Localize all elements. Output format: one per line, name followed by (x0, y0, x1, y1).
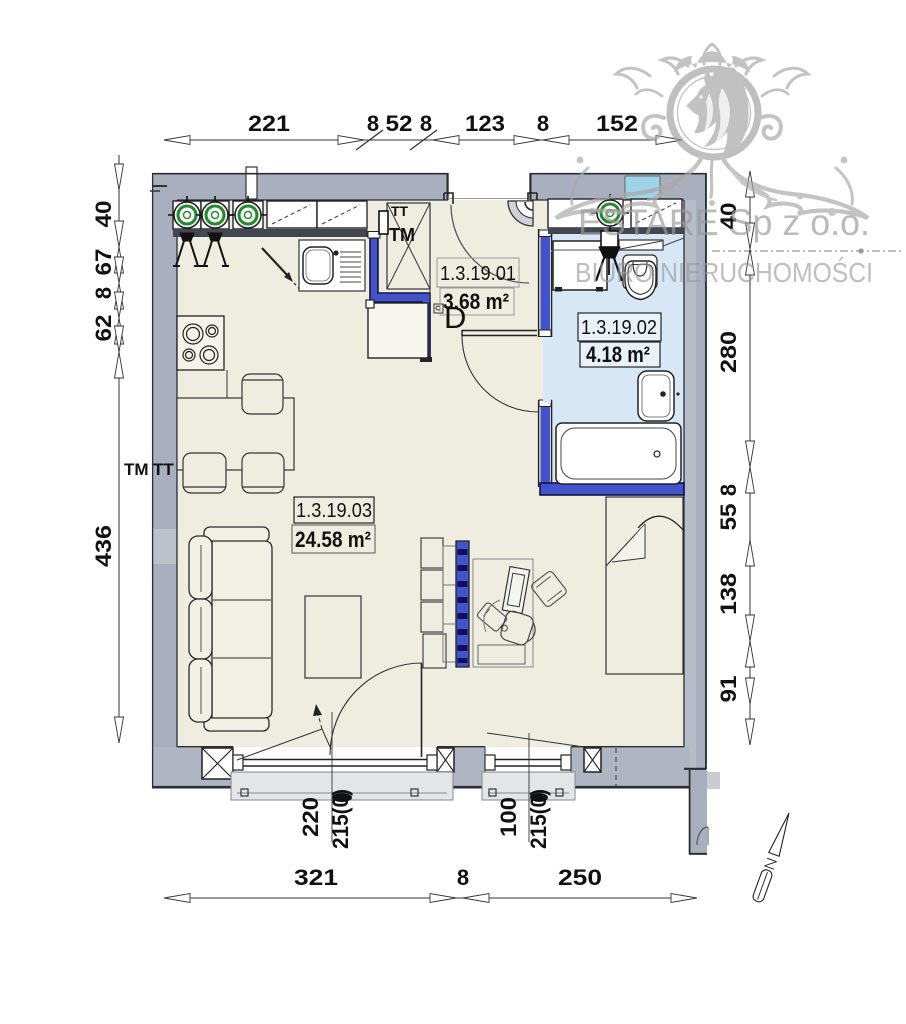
svg-text:221: 221 (248, 111, 290, 136)
svg-text:62: 62 (91, 315, 116, 342)
svg-text:138: 138 (716, 573, 741, 615)
svg-text:67: 67 (91, 249, 116, 276)
svg-text:4.18 m²: 4.18 m² (586, 342, 650, 367)
svg-text:250: 250 (558, 865, 602, 890)
svg-text:123: 123 (465, 111, 505, 136)
svg-text:8: 8 (91, 287, 116, 299)
svg-text:100: 100 (496, 797, 521, 837)
svg-text:91: 91 (716, 676, 741, 703)
svg-text:1.3.19.02: 1.3.19.02 (581, 317, 657, 339)
svg-text:24.58 m²: 24.58 m² (295, 527, 371, 552)
svg-text:D: D (444, 300, 466, 335)
svg-text:215(0): 215(0) (526, 789, 551, 849)
svg-text:215(0): 215(0) (328, 789, 353, 849)
svg-text:8: 8 (457, 865, 469, 890)
svg-text:ESTARE Sp z o.o.: ESTARE Sp z o.o. (578, 202, 870, 243)
svg-text:TT: TT (391, 203, 409, 219)
svg-text:8: 8 (716, 484, 741, 496)
svg-text:436: 436 (91, 525, 116, 567)
svg-text:280: 280 (716, 331, 741, 373)
svg-text:220: 220 (298, 797, 323, 837)
svg-text:8: 8 (367, 111, 379, 136)
svg-text:52: 52 (386, 111, 413, 136)
svg-text:152: 152 (596, 111, 638, 136)
svg-text:55: 55 (716, 504, 741, 531)
svg-text:8: 8 (420, 111, 432, 136)
svg-text:1.3.19.03: 1.3.19.03 (296, 500, 372, 522)
svg-text:TM: TM (389, 225, 415, 245)
svg-text:TT: TT (153, 460, 174, 479)
svg-text:321: 321 (294, 865, 338, 890)
svg-text:BIURO NIERUCHOMOŚCI: BIURO NIERUCHOMOŚCI (575, 256, 873, 288)
svg-text:1.3.19.01: 1.3.19.01 (440, 263, 516, 285)
svg-text:40: 40 (91, 201, 116, 228)
svg-text:8: 8 (537, 111, 549, 136)
svg-text:TM: TM (124, 460, 149, 479)
